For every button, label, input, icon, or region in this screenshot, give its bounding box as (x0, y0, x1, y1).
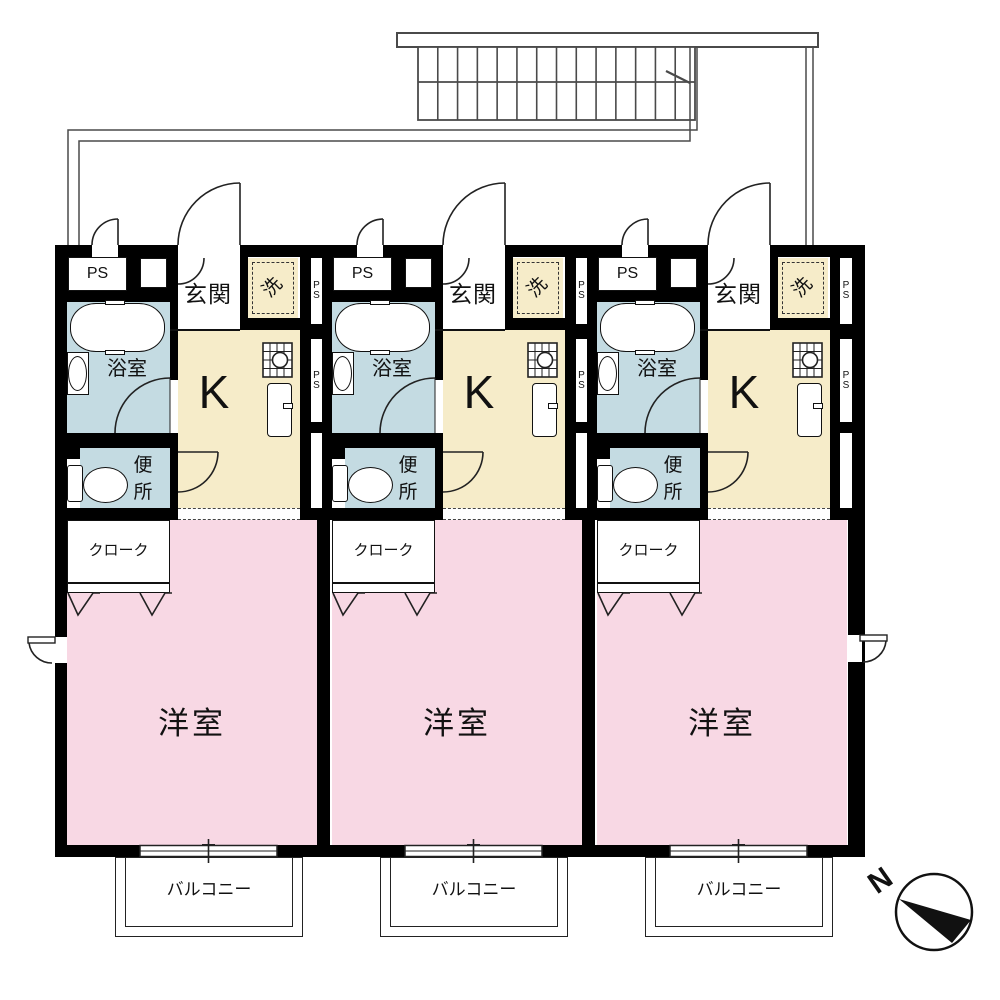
stair-landing (397, 33, 818, 47)
entrance-inner-door-arc (178, 258, 204, 284)
entrance-door-arc (708, 183, 770, 245)
staircase (397, 33, 818, 120)
entrance-door-arc (178, 183, 240, 245)
closet-door-marks (598, 593, 702, 615)
kitchen-door-arc (708, 452, 748, 492)
unit-3: PS 玄関 洗 浴室 便所 (597, 245, 897, 945)
stove-icon (263, 343, 292, 377)
unit-linework (332, 175, 632, 945)
floor-plan: PS PS PS PS PS PS (0, 0, 1000, 1000)
sliding-window (405, 839, 542, 863)
ps-door-arc (622, 219, 648, 245)
closet-door-marks (68, 593, 172, 615)
compass-needle (899, 899, 971, 943)
unit-1: PS 玄関 洗 浴室 便所 (67, 245, 367, 945)
stove-icon (793, 343, 822, 377)
ps-door-arc (92, 219, 118, 245)
ps-door-arc (357, 219, 383, 245)
stair-flight (418, 47, 695, 120)
stair-direction-tick (666, 71, 690, 83)
unit-linework (597, 175, 897, 945)
stove-icon (528, 343, 557, 377)
unit-2: PS 玄関 洗 浴室 便所 (332, 245, 632, 945)
entrance-door-arc (443, 183, 505, 245)
unit-linework (67, 175, 367, 945)
closet-door-marks (333, 593, 437, 615)
sliding-window (670, 839, 807, 863)
kitchen-door-arc (178, 452, 218, 492)
entrance-inner-door-arc (708, 258, 734, 284)
bath-door-arc (115, 378, 170, 433)
entrance-inner-door-arc (443, 258, 469, 284)
bath-door-arc (380, 378, 435, 433)
sliding-window (140, 839, 277, 863)
bath-door-arc (645, 378, 700, 433)
kitchen-door-arc (443, 452, 483, 492)
